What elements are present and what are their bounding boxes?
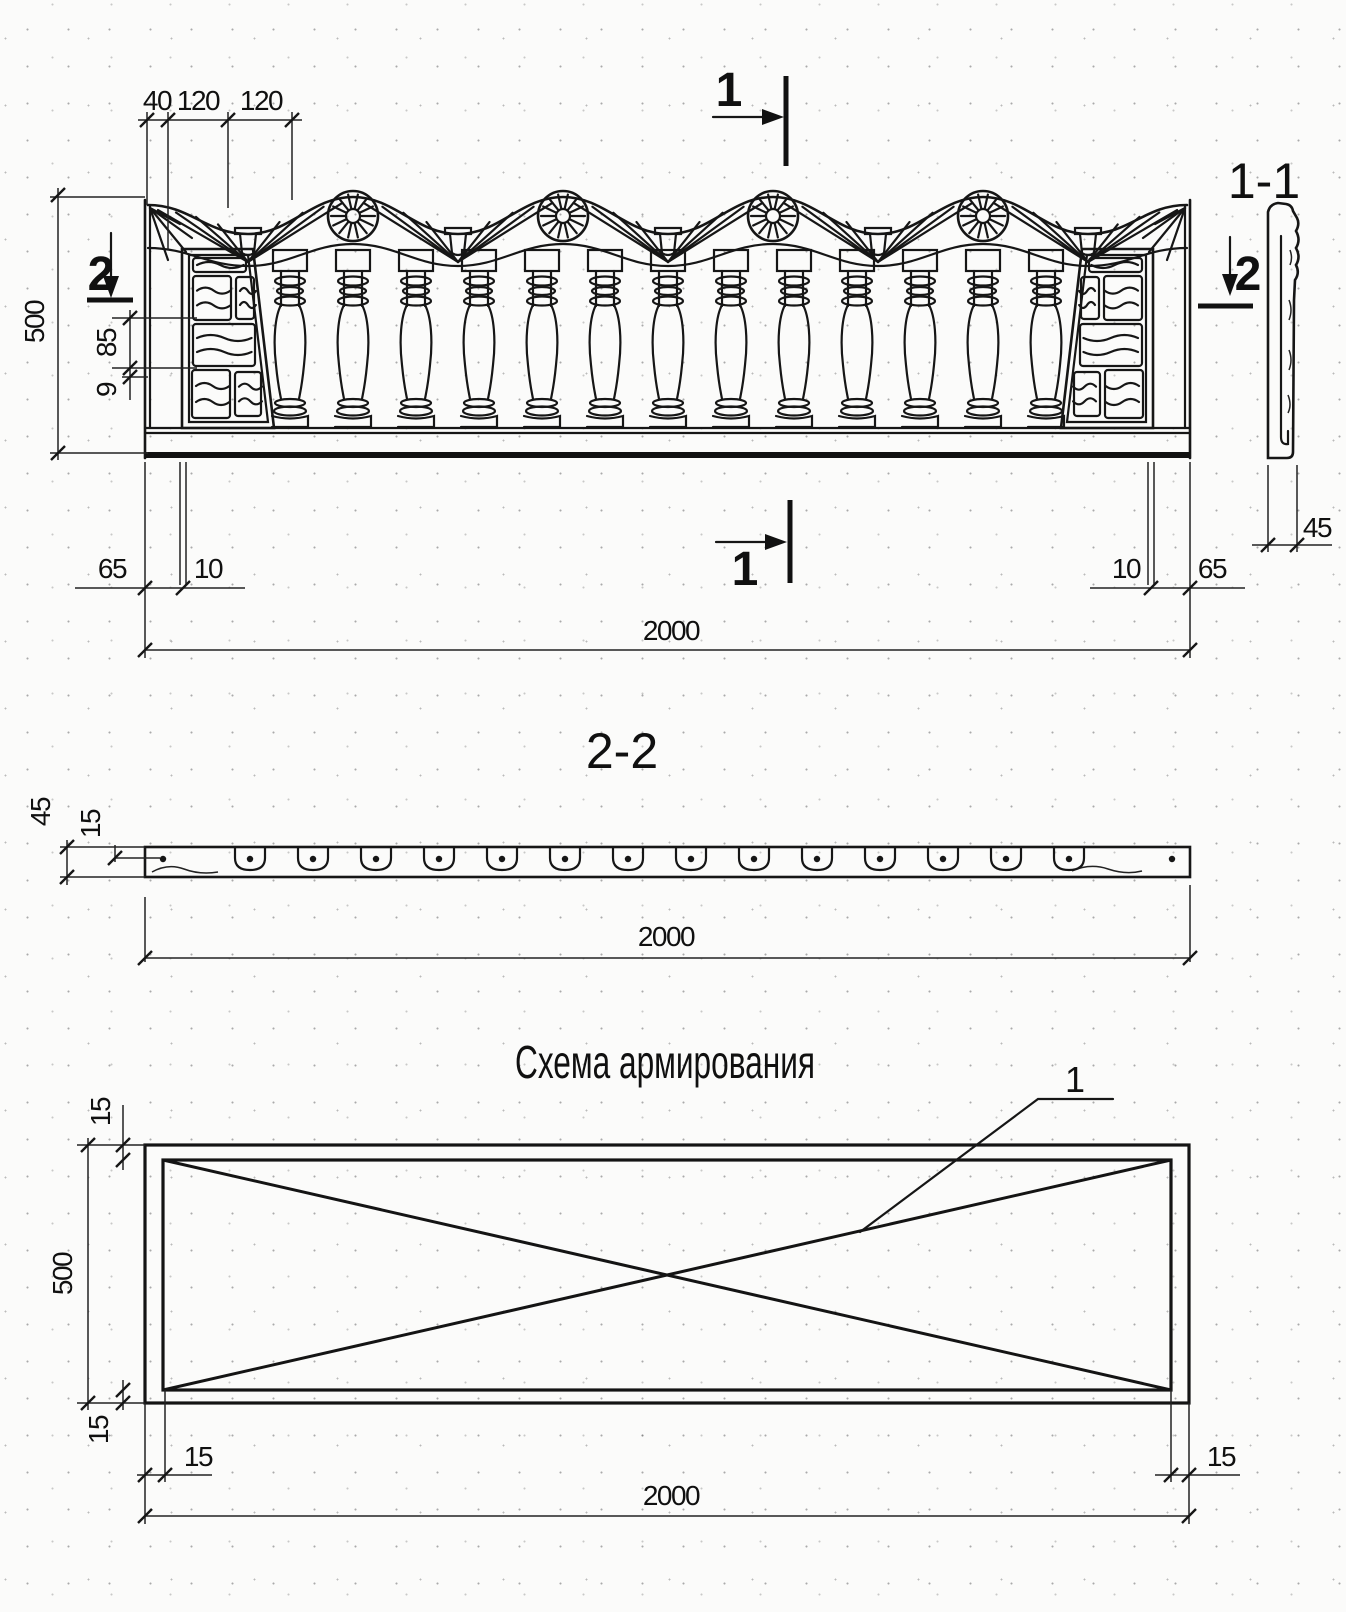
section-2-2-view xyxy=(145,847,1190,877)
dim-65-right: 65 xyxy=(1198,553,1227,584)
section-1-1-view xyxy=(1268,203,1299,458)
dim-65-left: 65 xyxy=(98,553,127,584)
cut-mark-2-right: 2 xyxy=(1235,248,1262,301)
dim-45-section22: 45 xyxy=(25,797,56,826)
rebar-diagonals xyxy=(163,1160,1171,1390)
rosette-icon xyxy=(748,191,798,241)
cut-mark-1-bottom: 1 xyxy=(732,543,759,596)
dim-85: 85 xyxy=(91,328,122,357)
dim-10-left: 10 xyxy=(194,553,223,584)
dim-2000-section22: 2000 xyxy=(638,921,695,952)
dim-15-scheme-bottomleft: 15 xyxy=(83,1415,114,1444)
crest-ornament xyxy=(148,191,1187,266)
balustrade-technical-drawing: 40 120 120 500 85 9 65 10 10 65 2000 45 … xyxy=(0,0,1346,1612)
dim-120-2: 120 xyxy=(240,85,283,116)
dim-10-right: 10 xyxy=(1112,553,1141,584)
dim-500-elevation: 500 xyxy=(19,300,50,343)
rebar-leader-label: 1 xyxy=(1065,1059,1085,1100)
cut-mark-2-left: 2 xyxy=(88,248,115,301)
leader-line xyxy=(860,1099,1113,1232)
dim-15-section22: 15 xyxy=(75,809,106,838)
cut-mark-1-top: 1 xyxy=(716,64,743,117)
dim-15-scheme-bottom: 15 xyxy=(184,1441,213,1472)
scheme-title: Схема армирования xyxy=(515,1036,815,1088)
dim-15-scheme-top: 15 xyxy=(85,1097,116,1126)
rebar-line xyxy=(1281,236,1288,444)
dowel-bars xyxy=(180,462,1154,585)
dim-500-scheme: 500 xyxy=(47,1252,78,1295)
rosette-icon xyxy=(958,191,1008,241)
section-title-2-2: 2-2 xyxy=(586,723,658,779)
section-title-1-1: 1-1 xyxy=(1228,153,1300,209)
rosette-icon xyxy=(538,191,588,241)
stone-end-post xyxy=(182,249,274,428)
dim-2000-elevation: 2000 xyxy=(643,615,700,646)
dim-120-1: 120 xyxy=(177,85,220,116)
dim-15-scheme-right: 15 xyxy=(1207,1441,1236,1472)
elevation-view xyxy=(145,191,1190,585)
dim-40: 40 xyxy=(143,85,172,116)
reinforcement-scheme xyxy=(145,1099,1189,1403)
dim-9: 9 xyxy=(91,382,122,397)
dim-2000-scheme: 2000 xyxy=(643,1480,700,1511)
rosette-icon xyxy=(328,191,378,241)
labels: 40 120 120 500 85 9 65 10 10 65 2000 45 … xyxy=(19,64,1332,1511)
drawing-sheet: 40 120 120 500 85 9 65 10 10 65 2000 45 … xyxy=(0,0,1346,1612)
dim-45-section11: 45 xyxy=(1303,512,1332,543)
